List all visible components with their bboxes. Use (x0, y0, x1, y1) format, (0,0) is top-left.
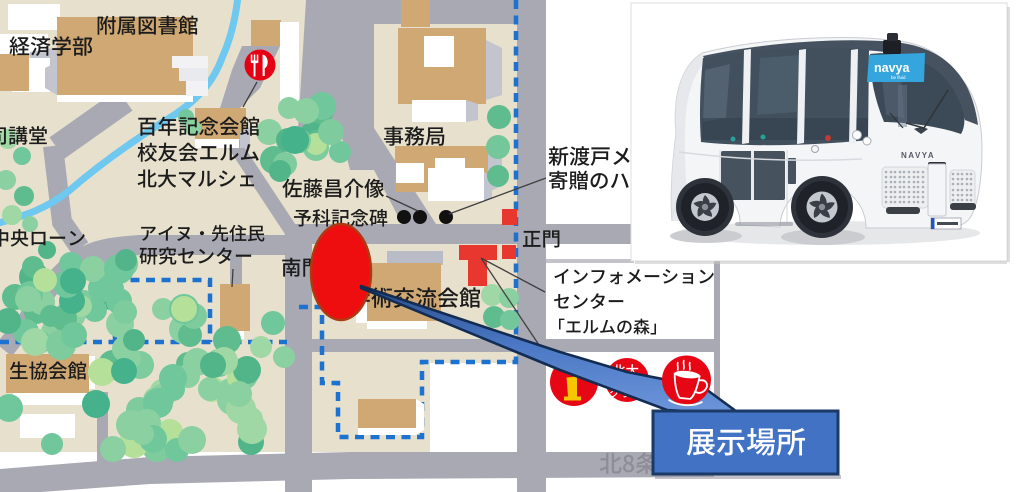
svg-text:navya: navya (874, 61, 910, 75)
svg-text:NAVYA: NAVYA (901, 151, 935, 160)
svg-text:be fluid: be fluid (891, 75, 906, 80)
